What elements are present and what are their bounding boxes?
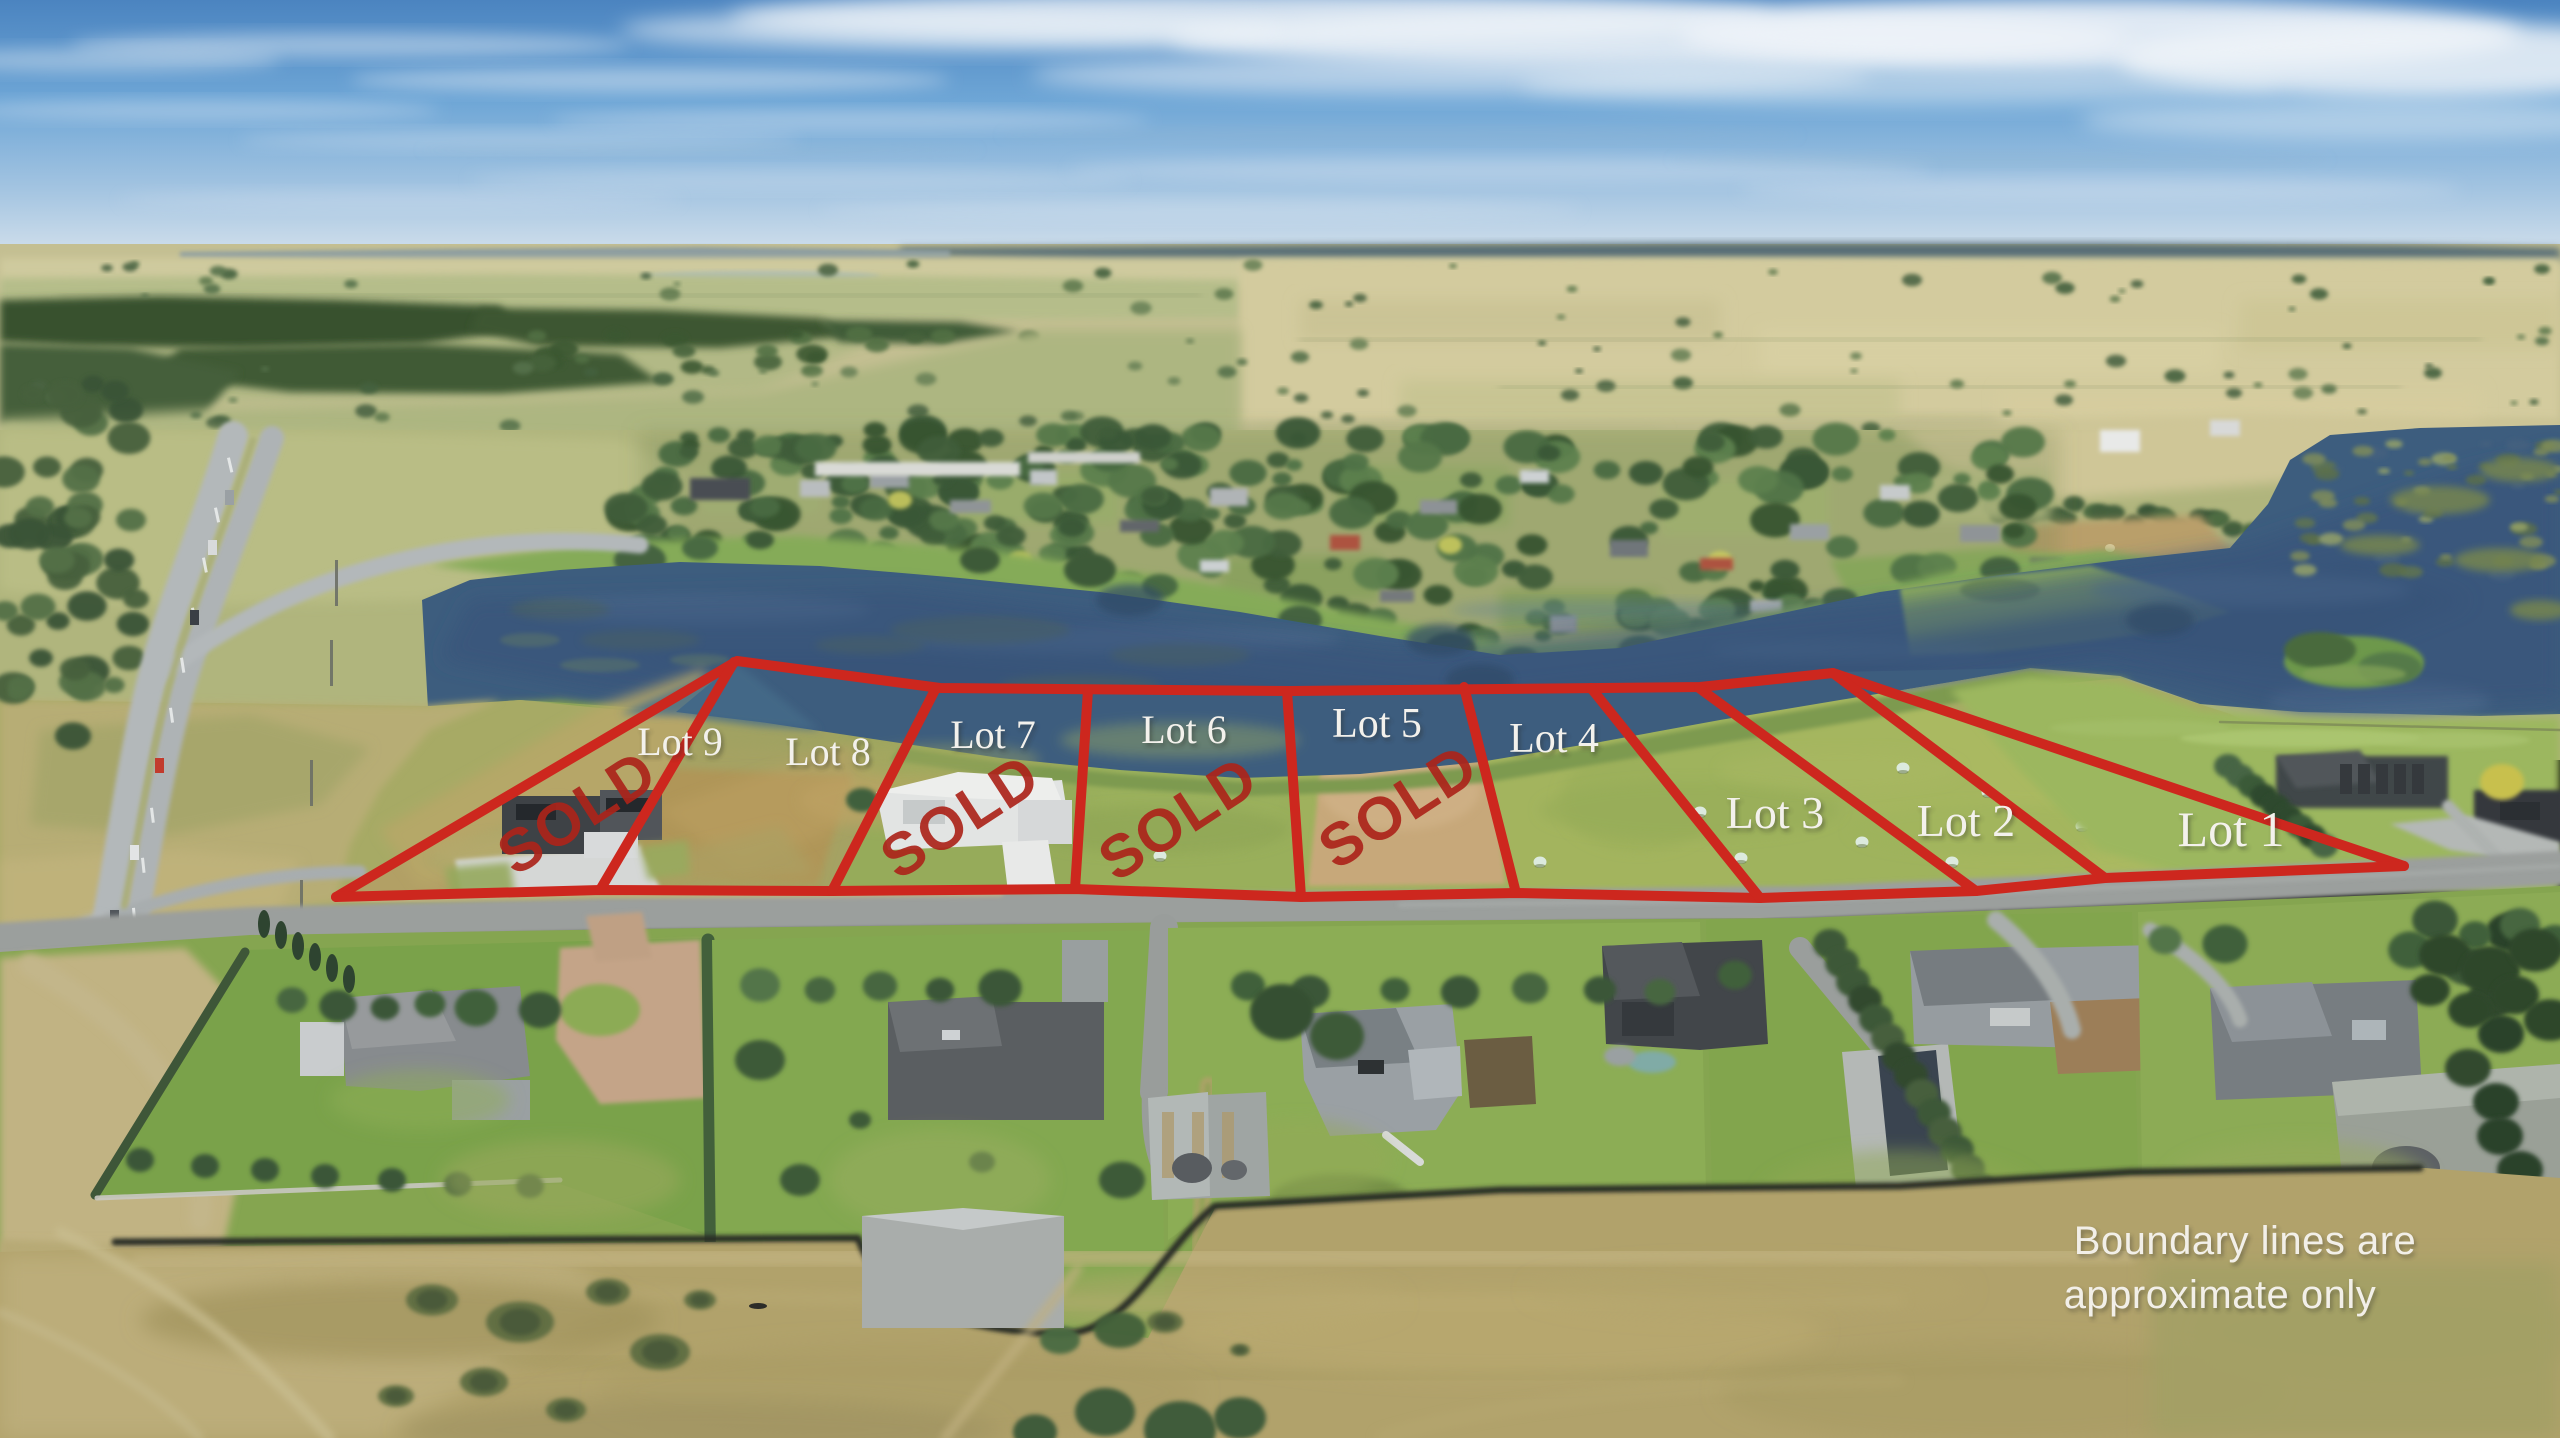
svg-text:Lot 2: Lot 2 xyxy=(1917,795,2015,846)
svg-text:Lot 9: Lot 9 xyxy=(637,719,723,764)
svg-text:Lot 8: Lot 8 xyxy=(785,729,871,774)
svg-text:Lot 5: Lot 5 xyxy=(1332,701,1422,747)
svg-text:Lot 7: Lot 7 xyxy=(950,712,1036,757)
svg-text:Lot 6: Lot 6 xyxy=(1141,707,1227,752)
svg-text:Lot 4: Lot 4 xyxy=(1509,716,1599,762)
svg-text:approximate only: approximate only xyxy=(2064,1273,2377,1317)
svg-text:Lot 3: Lot 3 xyxy=(1726,787,1824,838)
svg-text:Boundary lines are: Boundary lines are xyxy=(2074,1219,2417,1263)
svg-text:Lot 1: Lot 1 xyxy=(2178,801,2285,857)
